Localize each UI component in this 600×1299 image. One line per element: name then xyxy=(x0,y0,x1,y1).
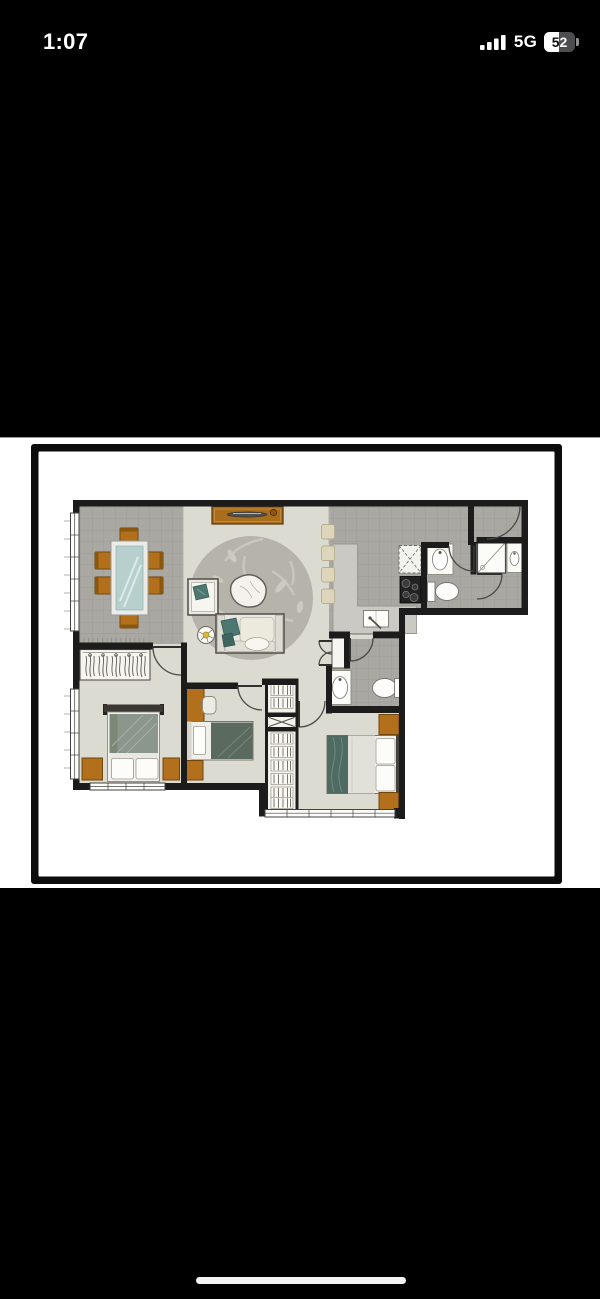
armchair xyxy=(188,579,218,615)
nightstand xyxy=(379,715,399,735)
console-table xyxy=(212,507,283,525)
battery-nub xyxy=(576,38,579,46)
toilet-1-tank xyxy=(428,582,436,602)
status-bar-right: 5G 52 52 xyxy=(480,32,579,52)
floor-plan-image xyxy=(0,438,600,888)
cellular-signal-icon xyxy=(480,34,508,51)
status-bar: 1:07 5G 52 52 xyxy=(0,27,600,57)
coffee-table xyxy=(231,575,267,607)
home-indicator[interactable] xyxy=(196,1277,406,1284)
network-type-label: 5G xyxy=(514,32,537,52)
nightstand xyxy=(185,761,204,781)
desk-chair xyxy=(203,697,217,715)
linen-closet-column xyxy=(265,680,299,811)
clock-time: 1:07 xyxy=(43,29,88,55)
nightstand xyxy=(163,758,180,780)
toilet-2 xyxy=(373,679,397,698)
desk xyxy=(185,687,205,724)
stove xyxy=(400,577,421,604)
side-table-plant xyxy=(198,627,215,644)
refrigerator-dashed xyxy=(399,546,421,574)
photo-floor-plan[interactable] xyxy=(0,437,600,888)
sofa xyxy=(216,614,284,653)
battery-icon: 52 52 xyxy=(544,32,579,52)
laundry-closet xyxy=(332,638,345,668)
nightstand xyxy=(82,758,103,780)
phone-screen: 1:07 5G 52 52 xyxy=(0,0,600,1299)
toilet-1 xyxy=(436,583,459,601)
